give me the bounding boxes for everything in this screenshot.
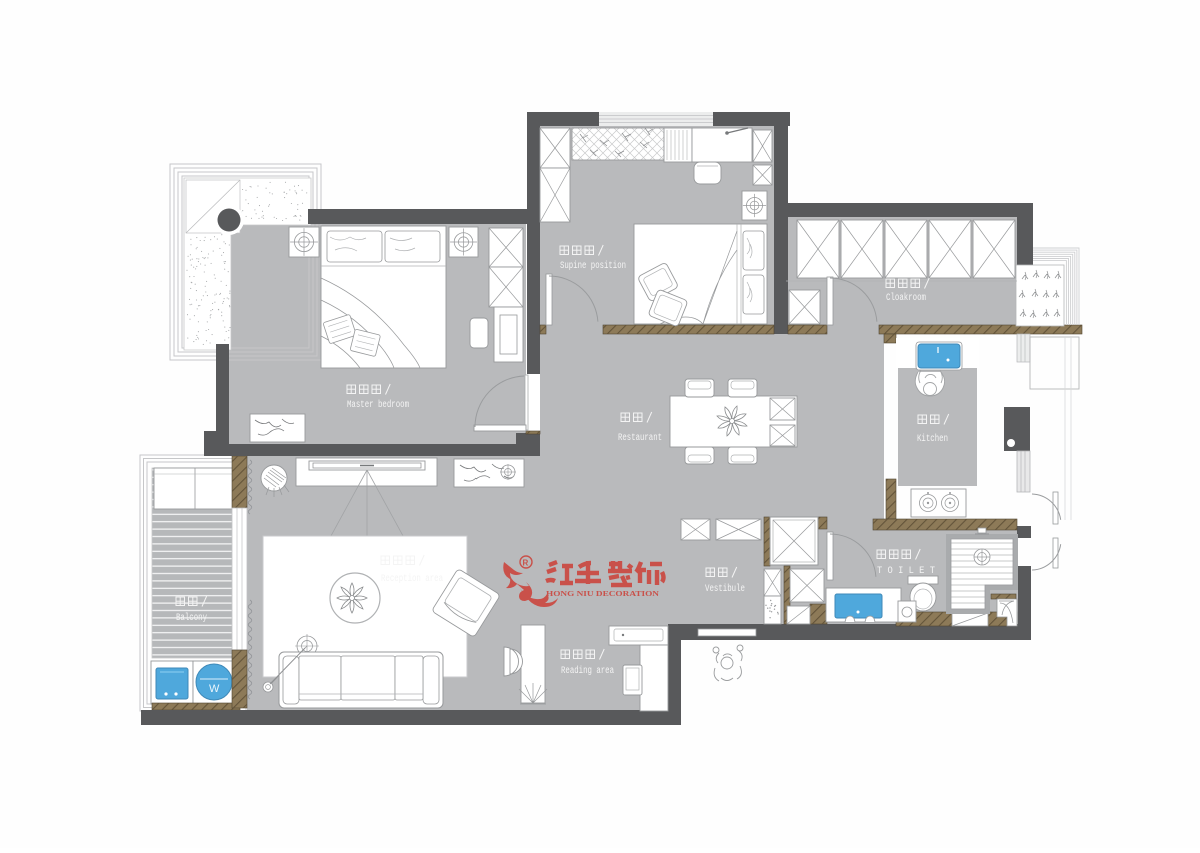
svg-text:Supine position: Supine position	[560, 260, 626, 272]
svg-text:HONG NIU DECORATION: HONG NIU DECORATION	[546, 589, 659, 598]
svg-text:Kitchen: Kitchen	[917, 433, 948, 445]
svg-text:R: R	[523, 559, 529, 568]
svg-text:W: W	[209, 683, 220, 695]
svg-text:T O I L E T: T O I L E T	[877, 566, 935, 577]
svg-text:Reception area: Reception area	[381, 573, 443, 585]
svg-text:Cloakroom: Cloakroom	[886, 292, 926, 304]
svg-text:Master bedroom: Master bedroom	[347, 399, 409, 411]
svg-text:Restaurant: Restaurant	[618, 433, 662, 444]
svg-text:Balcony: Balcony	[176, 612, 207, 624]
svg-text:Vestibule: Vestibule	[705, 583, 745, 595]
svg-text:Reading area: Reading area	[561, 665, 614, 677]
